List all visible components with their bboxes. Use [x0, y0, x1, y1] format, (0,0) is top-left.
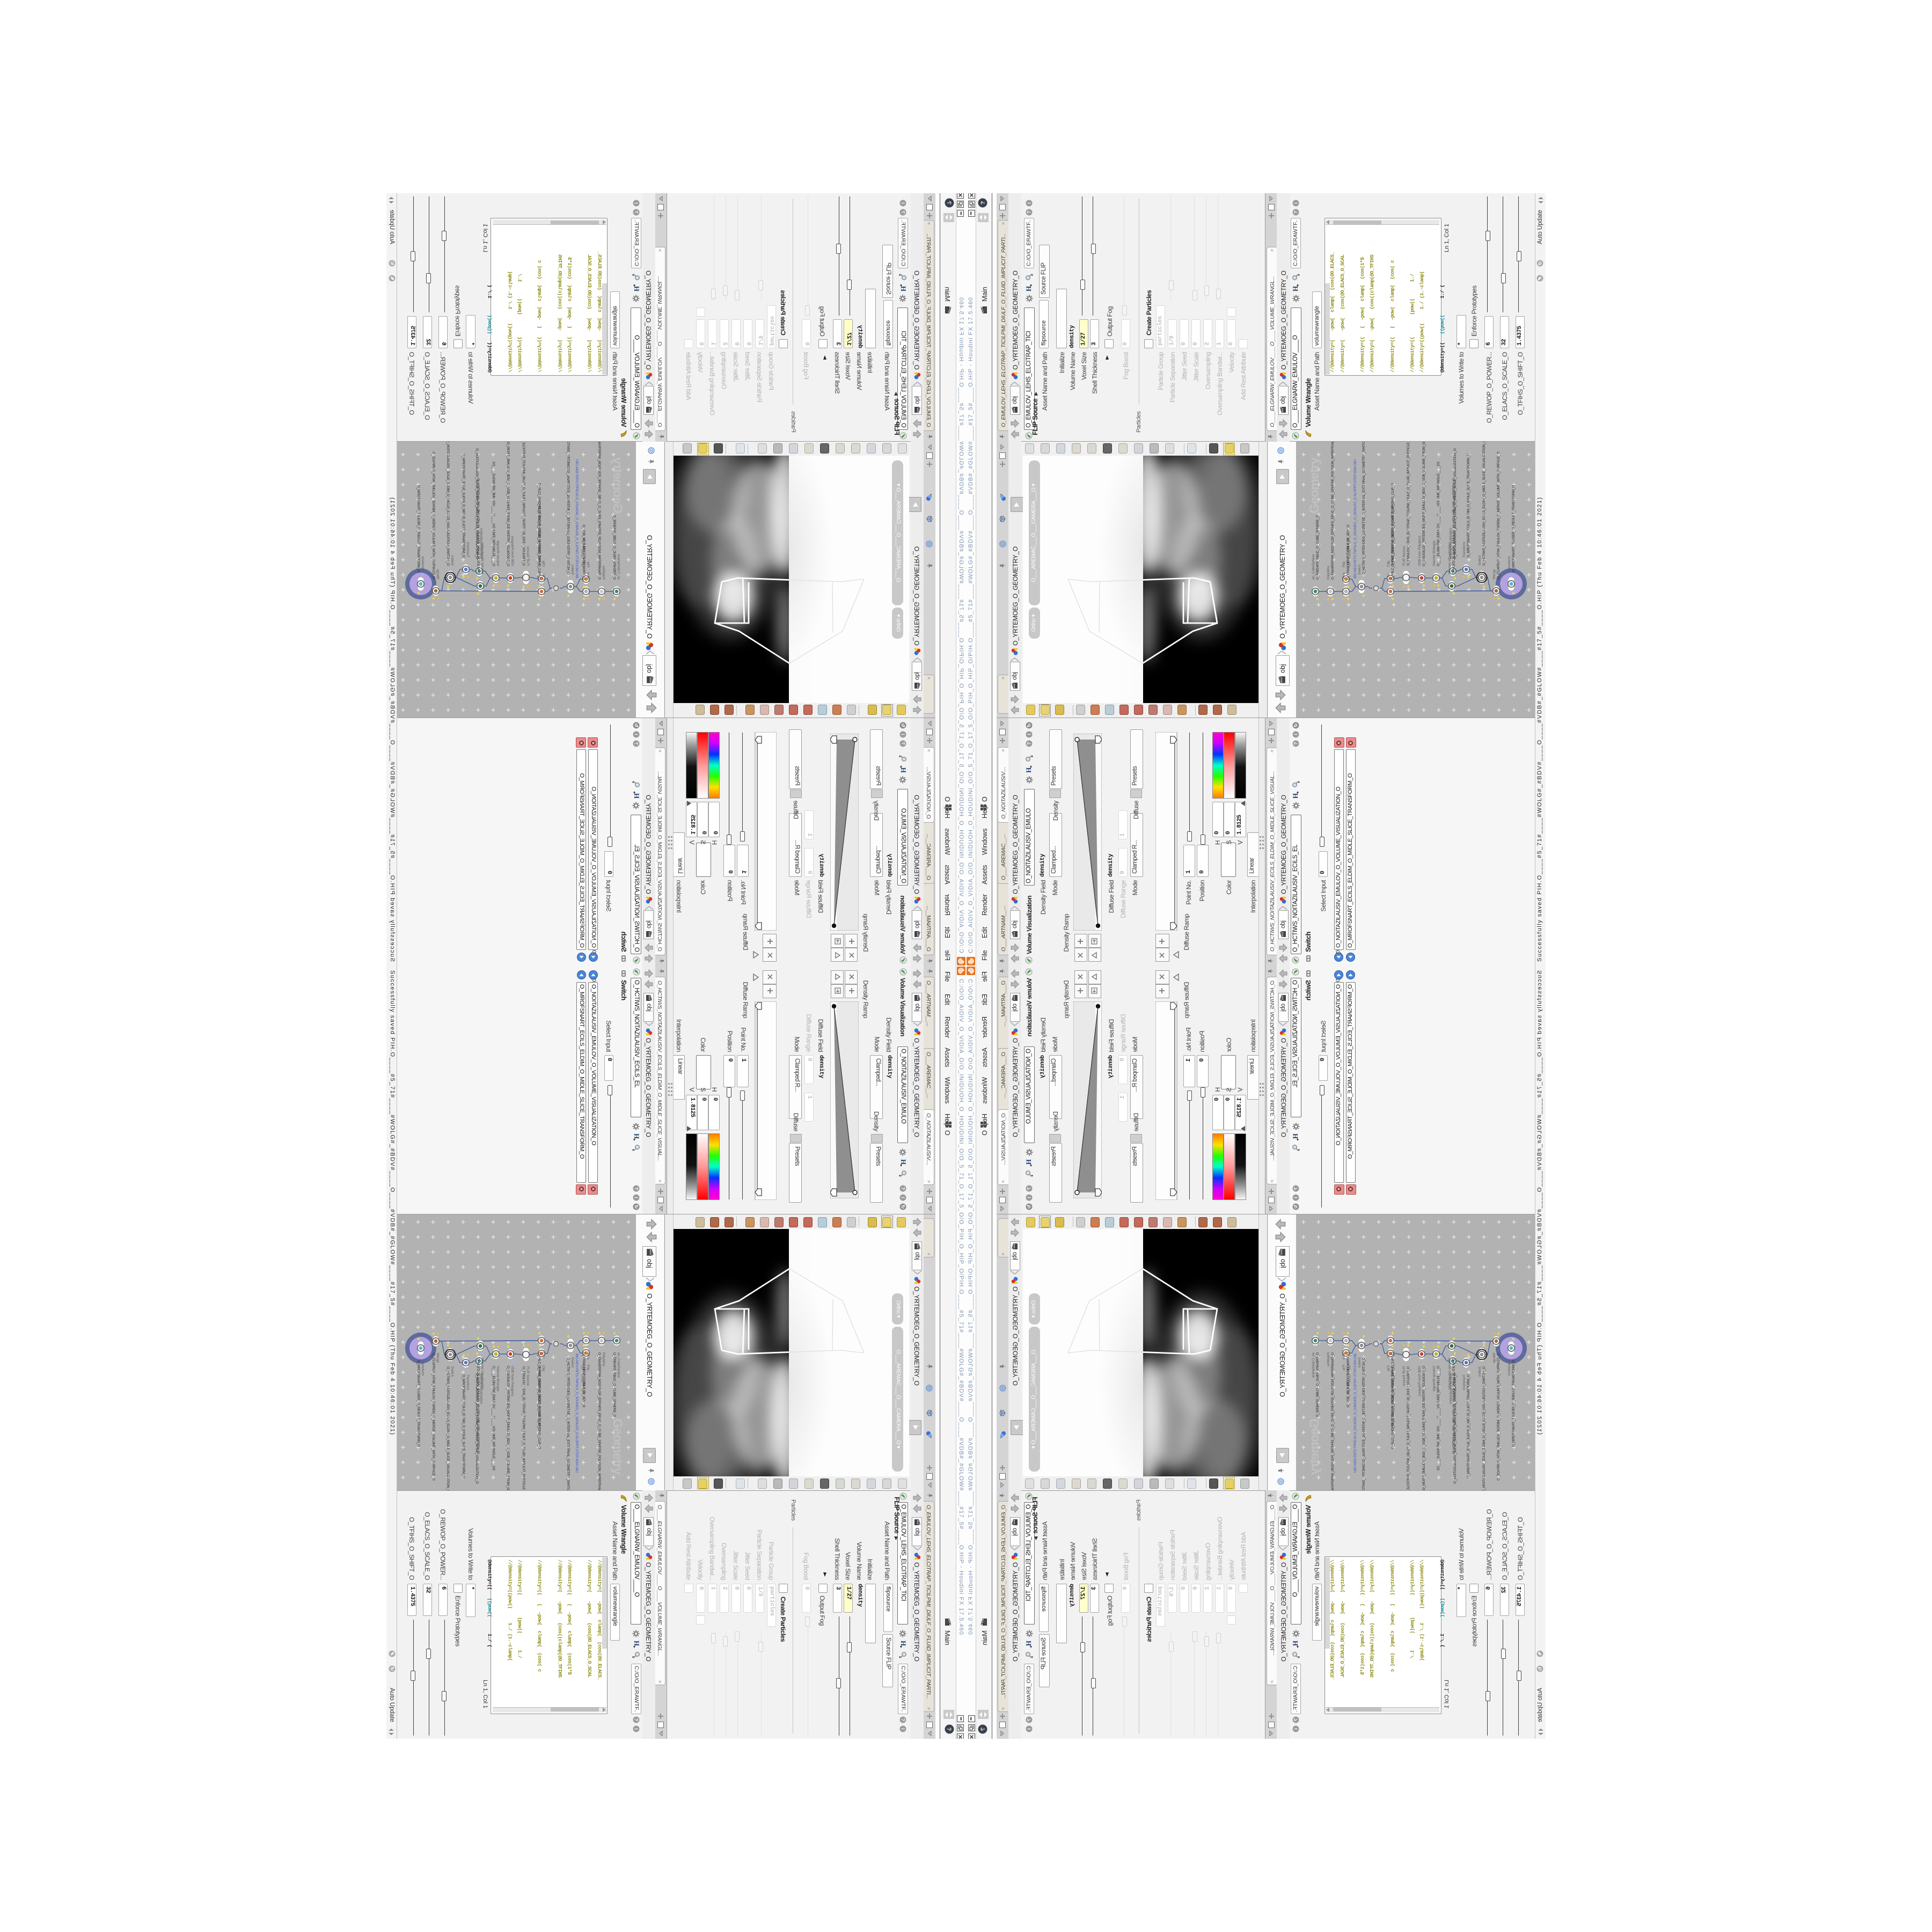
- svg-text:H: H: [899, 1159, 907, 1165]
- svg-text:i: i: [633, 202, 639, 204]
- svg-text:O_SNOGILOP_YRTEMOEG_MORF_EMULO: O_SNOGILOP_YRTEMOEG_MORF_EMULOV_BDV_O_VD…: [1422, 442, 1426, 566]
- svg-text:O_PILC_THGIR_DEDIS_O_SIDED_RIG: O_PILC_THGIR_DEDIS_O_SIDED_RIGHT_CLIP_O: [537, 501, 541, 580]
- svg-text:↻: ↻: [900, 1205, 905, 1209]
- svg-text:Volume Wrangle: Volume Wrangle: [1432, 1366, 1436, 1392]
- svg-text:O_EREHPS_EBUC_O_CUBE_SPHERE_O: O_EREHPS_EBUC_O_CUBE_SPHERE_O: [612, 515, 616, 580]
- svg-text:Volume Wrangle: Volume Wrangle: [496, 1366, 500, 1392]
- svg-text:?: ?: [633, 742, 639, 745]
- svg-text:O_ECAFRUS_HTIW_EMULOV_EGREM_O_: O_ECAFRUS_HTIW_EMULOV_EGREM_O_MERGE_VOLU…: [431, 451, 435, 579]
- svg-text:O_ELIF_O_FILE_O: O_ELIF_O_FILE_O: [1346, 538, 1350, 567]
- svg-text:?: ?: [1293, 1718, 1299, 1722]
- svg-text:O_MROFSNART_ECILS_ELDIM_O_MIDL: O_MROFSNART_ECILS_ELDIM_O_MIDLE_SLICE_TR…: [1467, 1374, 1470, 1479]
- svg-text:JBO.MD3.PETS.T6PSLS_O_5DUNEG_O: JBO.MD3.PETS.T6PSLS_O_5DUNEG_O_GENUS3_O.…: [575, 459, 579, 579]
- svg-text:O_EMULOV_LEHS_ELCITRAP_TICILPM: O_EMULOV_LEHS_ELCITRAP_TICILPMI_DIULF_O_…: [1407, 1366, 1410, 1490]
- svg-text:File: File: [1342, 561, 1346, 567]
- svg-text:?: ?: [1293, 742, 1299, 745]
- svg-text:H: H: [899, 1641, 907, 1646]
- svg-text:Volume Wrangle: Volume Wrangle: [496, 540, 500, 566]
- svg-text:i: i: [1293, 1197, 1299, 1198]
- svg-text:O_MROFSNART_TLUSER_O_RESULT_TR: O_MROFSNART_TLUSER_O_RESULT_TRANSFORM_O: [416, 1360, 420, 1447]
- svg-text:O_HCTIWS_YRTEMOEG_LANRETXE_O_I: O_HCTIWS_YRTEMOEG_LANRETXE_O_INTERNAL_EX…: [566, 1357, 570, 1490]
- svg-text:Switch: Switch: [1358, 1357, 1362, 1368]
- svg-text:Volume Visualization: Volume Visualization: [1448, 542, 1452, 574]
- svg-text:H: H: [1025, 1159, 1033, 1165]
- svg-text:O_ELIF_O_FILE_O: O_ELIF_O_FILE_O: [582, 538, 586, 567]
- svg-text:Volume Visualization: Volume Visualization: [480, 1358, 484, 1390]
- svg-text:↻: ↻: [1538, 1667, 1543, 1671]
- svg-text:↻: ↻: [389, 1667, 394, 1671]
- svg-text:Clip: Clip: [541, 1352, 545, 1359]
- svg-text:?: ?: [900, 1187, 905, 1190]
- svg-text:O_PILC_THGIR_DEDIS_O_SIDED_RIG: O_PILC_THGIR_DEDIS_O_SIDED_RIGHT_CLIP_O: [1391, 501, 1395, 580]
- svg-text:?: ?: [900, 742, 905, 745]
- svg-text:Wire: Wire: [586, 572, 590, 580]
- svg-text:O_SNOGILOP_YRTEMOEG_MORF_EMULO: O_SNOGILOP_YRTEMOEG_MORF_EMULOV_BDV_O_VD…: [506, 1366, 510, 1490]
- svg-text:Volume Wrangle: Volume Wrangle: [1432, 540, 1436, 566]
- svg-text:i: i: [900, 734, 905, 735]
- svg-text:✎: ✎: [1538, 1652, 1543, 1656]
- svg-text:Volume Visualization: Volume Visualization: [1448, 1358, 1452, 1390]
- svg-text:Switch: Switch: [570, 564, 574, 575]
- svg-text:Volume Visualization: Volume Visualization: [480, 542, 484, 574]
- svg-text:Clip: Clip: [1387, 573, 1391, 580]
- svg-text:Wire: Wire: [586, 1352, 590, 1360]
- svg-text:O_MROFSNART_TLUSER_O_RESULT_TR: O_MROFSNART_TLUSER_O_RESULT_TRANSFORM_O: [416, 485, 420, 572]
- svg-text:PolyWire: PolyWire: [1327, 566, 1330, 580]
- svg-text:i: i: [1027, 202, 1032, 204]
- svg-text:Wire: Wire: [1342, 1352, 1346, 1360]
- svg-text:↻: ↻: [389, 261, 394, 266]
- svg-text:PolyWire: PolyWire: [602, 566, 605, 580]
- svg-text:H: H: [1292, 1641, 1299, 1646]
- svg-text:?: ?: [1027, 1187, 1032, 1190]
- svg-text:O_NOITAZILAUSIV_EMULOV_O_VOLUM: O_NOITAZILAUSIV_EMULOV_O_VOLUME_VISUALIZ…: [1452, 1358, 1456, 1454]
- svg-text:O_SNOGILOP_YRTEMOEG_MORF_EMULO: O_SNOGILOP_YRTEMOEG_MORF_EMULOV_BDV_O_VD…: [506, 442, 510, 566]
- svg-text:VDB from Polygons: VDB from Polygons: [1418, 536, 1422, 566]
- svg-text:i: i: [900, 202, 905, 204]
- svg-text:i: i: [1293, 734, 1299, 735]
- svg-text:Switch: Switch: [1358, 564, 1362, 575]
- svg-text:Merge: Merge: [1492, 569, 1496, 579]
- svg-text:O_ELIF_O_FILE_O: O_ELIF_O_FILE_O: [582, 1365, 586, 1394]
- svg-text:i: i: [1293, 202, 1299, 204]
- svg-text:O____ELGNARW_EMULOV____O____VO: O____ELGNARW_EMULOV____O____VOLUME_WRANG…: [492, 1366, 495, 1470]
- svg-text:?: ?: [633, 1187, 639, 1190]
- svg-text:JBO.MD3.PETS.T6PSLS_O_5DUNEG_O: JBO.MD3.PETS.T6PSLS_O_5DUNEG_O_GENUS3_O.…: [1353, 1353, 1357, 1473]
- svg-text:Merge: Merge: [436, 569, 440, 579]
- svg-text:O_MROFSNART_ECILS_ELDIM_O_MIDL: O_MROFSNART_ECILS_ELDIM_O_MIDLE_SLICE_TR…: [1467, 453, 1470, 558]
- svg-text:↻: ↻: [900, 723, 905, 728]
- svg-text:O_EMULOV_LEHS_ELCITRAP_TICILPM: O_EMULOV_LEHS_ELCITRAP_TICILPMI_DIULF_O_…: [1407, 442, 1410, 566]
- svg-text:i: i: [633, 1728, 639, 1730]
- svg-text:O_EMARFERIW_NOGYLOP_EREHPS_EBU: O_EMARFERIW_NOGYLOP_EREHPS_EBUC_O_CUBE_S…: [1331, 1352, 1335, 1490]
- svg-text:H: H: [1025, 1641, 1033, 1646]
- svg-text:O____ELGNARW_EMULOV____O____VO: O____ELGNARW_EMULOV____O____VOLUME_WRANG…: [1437, 462, 1440, 566]
- svg-text:O_HCTIWS_NOITAZILAUSIV_ECILS_E: O_HCTIWS_NOITAZILAUSIV_ECILS_ELDIM_O_MID…: [1482, 1366, 1486, 1490]
- svg-text:O_MROFSNART_TLUSER_O_RESULT_TR: O_MROFSNART_TLUSER_O_RESULT_TRANSFORM_O: [1512, 1360, 1516, 1447]
- svg-text:H: H: [899, 286, 907, 291]
- svg-text:H: H: [1292, 1133, 1299, 1139]
- svg-text:PolyWire: PolyWire: [602, 1352, 605, 1366]
- svg-text:?: ?: [946, 1728, 952, 1731]
- svg-text:Transform: Transform: [1462, 1374, 1466, 1390]
- svg-text:?: ?: [1293, 211, 1299, 214]
- svg-text:Clip: Clip: [1387, 560, 1391, 567]
- svg-text:VDB from Polygons: VDB from Polygons: [510, 1366, 514, 1396]
- svg-text:O_HCTIWS_NOITAZILAUSIV_ECILS_E: O_HCTIWS_NOITAZILAUSIV_ECILS_ELDIM_O_MID…: [1482, 442, 1486, 566]
- svg-text:JBO.MD3.PETS.T6PSLS_O_5DUNEG_O: JBO.MD3.PETS.T6PSLS_O_5DUNEG_O_GENUS3_O.…: [1353, 459, 1357, 579]
- svg-text:H: H: [633, 1641, 640, 1646]
- svg-text:FLIP Source: FLIP Source: [1402, 1366, 1406, 1386]
- svg-text:↻: ↻: [633, 723, 639, 728]
- svg-text:?: ?: [900, 211, 905, 214]
- svg-text:Merge: Merge: [436, 1353, 440, 1363]
- svg-text:VDB from Polygons: VDB from Polygons: [510, 536, 514, 566]
- svg-text:Clip: Clip: [541, 1365, 545, 1372]
- svg-text:O_EREHPS_EBUC_O_CUBE_SPHERE_O: O_EREHPS_EBUC_O_CUBE_SPHERE_O: [1316, 515, 1320, 580]
- svg-text:Switch: Switch: [570, 1357, 574, 1368]
- svg-text:O_ELIF_O_FILE_O: O_ELIF_O_FILE_O: [1346, 1365, 1350, 1394]
- svg-text:Transform: Transform: [466, 542, 470, 558]
- svg-text:i: i: [1027, 1197, 1032, 1198]
- svg-text:↻: ↻: [1538, 261, 1543, 266]
- svg-text:Merge: Merge: [1492, 1353, 1496, 1363]
- svg-text:an_CubeSphere: an_CubeSphere: [617, 1352, 620, 1378]
- svg-text:O_NOITAZILAUSIV_EMULOV_O_VOLUM: O_NOITAZILAUSIV_EMULOV_O_VOLUME_VISUALIZ…: [476, 478, 480, 574]
- svg-text:Switch: Switch: [1478, 1366, 1482, 1377]
- svg-text:FLIP Source: FLIP Source: [1402, 546, 1406, 566]
- svg-text:O____ELGNARW_EMULOV____O____VO: O____ELGNARW_EMULOV____O____VOLUME_WRANG…: [1437, 1366, 1440, 1470]
- svg-text:VDB from Polygons: VDB from Polygons: [1418, 1366, 1422, 1396]
- svg-text:Transform: Transform: [1507, 1360, 1511, 1375]
- svg-text:O_EREHPS_EBUC_O_CUBE_SPHERE_O: O_EREHPS_EBUC_O_CUBE_SPHERE_O: [1316, 1352, 1320, 1417]
- svg-text:an_CubeSphere: an_CubeSphere: [1312, 554, 1315, 580]
- svg-text:File: File: [586, 1365, 590, 1371]
- svg-text:Geometry: Geometry: [610, 1418, 625, 1475]
- svg-text:File: File: [1342, 1365, 1346, 1371]
- svg-text:i: i: [1293, 1728, 1299, 1730]
- svg-text:?: ?: [946, 201, 952, 204]
- svg-text:O_EMULOV_LEHS_ELCITRAP_TICILPM: O_EMULOV_LEHS_ELCITRAP_TICILPMI_DIULF_O_…: [522, 442, 525, 566]
- svg-text:Transform: Transform: [1462, 542, 1466, 558]
- svg-text:O_HCTIWS_YRTEMOEG_LANRETXE_O_I: O_HCTIWS_YRTEMOEG_LANRETXE_O_INTERNAL_EX…: [1362, 442, 1366, 575]
- svg-text:↻: ↻: [1027, 723, 1032, 728]
- svg-text:Clip: Clip: [541, 560, 545, 567]
- svg-text:?: ?: [633, 211, 639, 214]
- svg-text:Clip: Clip: [541, 573, 545, 580]
- svg-text:✎: ✎: [1538, 276, 1543, 281]
- svg-text:O_PILC_THGIR_DEDIS_O_SIDED_RIG: O_PILC_THGIR_DEDIS_O_SIDED_RIGHT_CLIP_O: [537, 1352, 541, 1431]
- svg-text:O_HCTIWS_YRTEMOEG_LANRETXE_O_I: O_HCTIWS_YRTEMOEG_LANRETXE_O_INTERNAL_EX…: [566, 442, 570, 575]
- svg-text:Switch: Switch: [450, 555, 454, 566]
- svg-text:Transform: Transform: [421, 557, 425, 572]
- svg-text:PolyWire: PolyWire: [1327, 1352, 1330, 1366]
- svg-text:✎: ✎: [389, 1652, 394, 1656]
- svg-text:i: i: [900, 1197, 905, 1198]
- svg-text:Transform: Transform: [421, 1360, 425, 1375]
- svg-text:O_MROFSNART_ECILS_ELDIM_O_MIDL: O_MROFSNART_ECILS_ELDIM_O_MIDLE_SLICE_TR…: [462, 1374, 465, 1479]
- svg-text:✎: ✎: [389, 276, 394, 281]
- svg-text:i: i: [633, 734, 639, 735]
- svg-text:Transform: Transform: [1507, 557, 1511, 572]
- svg-text:?: ?: [1293, 1187, 1299, 1190]
- svg-text:O_EMARFERIW_NOGYLOP_EREHPS_EBU: O_EMARFERIW_NOGYLOP_EREHPS_EBUC_O_CUBE_S…: [597, 442, 601, 580]
- svg-text:?: ?: [1027, 211, 1032, 214]
- svg-text:O____ELGNARW_EMULOV____O____VO: O____ELGNARW_EMULOV____O____VOLUME_WRANG…: [492, 462, 495, 566]
- svg-text:i: i: [900, 1728, 905, 1730]
- svg-text:?: ?: [1027, 742, 1032, 745]
- svg-text:i: i: [1027, 1728, 1032, 1730]
- svg-text:H: H: [1025, 286, 1033, 291]
- svg-text:O_HCTIWS_YRTEMOEG_LANRETXE_O_I: O_HCTIWS_YRTEMOEG_LANRETXE_O_INTERNAL_EX…: [1362, 1357, 1366, 1490]
- svg-text:Clip: Clip: [1387, 1365, 1391, 1372]
- svg-text:Clip: Clip: [1387, 1352, 1391, 1359]
- svg-text:Switch: Switch: [1478, 555, 1482, 566]
- svg-text:FLIP Source: FLIP Source: [526, 546, 530, 566]
- svg-text:O_HCTIWS_NOITAZILAUSIV_ECILS_E: O_HCTIWS_NOITAZILAUSIV_ECILS_ELDIM_O_MID…: [446, 1366, 450, 1490]
- svg-text:an_CubeSphere: an_CubeSphere: [617, 554, 620, 580]
- svg-text:O_EREHPS_EBUC_O_CUBE_SPHERE_O: O_EREHPS_EBUC_O_CUBE_SPHERE_O: [612, 1352, 616, 1417]
- svg-text:H: H: [1025, 767, 1033, 773]
- svg-text:H: H: [1292, 286, 1299, 291]
- svg-text:O_EMARFERIW_NOGYLOP_EREHPS_EBU: O_EMARFERIW_NOGYLOP_EREHPS_EBUC_O_CUBE_S…: [597, 1352, 601, 1490]
- svg-text:↻: ↻: [1293, 723, 1299, 728]
- svg-text:?: ?: [1027, 1718, 1032, 1722]
- svg-text:JBO.MD3.PETS.T6PSLS_O_5DUNEG_O: JBO.MD3.PETS.T6PSLS_O_5DUNEG_O_GENUS3_O.…: [575, 1353, 579, 1473]
- svg-text:?: ?: [980, 1728, 986, 1731]
- svg-text:O_NOITAZILAUSIV_EMULOV_O_VOLUM: O_NOITAZILAUSIV_EMULOV_O_VOLUME_VISUALIZ…: [1452, 478, 1456, 574]
- svg-text:Geometry: Geometry: [1307, 457, 1322, 514]
- svg-text:O_MROFSNART_ECILS_ELDIM_O_MIDL: O_MROFSNART_ECILS_ELDIM_O_MIDLE_SLICE_TR…: [462, 453, 465, 558]
- svg-text:O_ECAFRUS_HTIW_EMULOV_EGREM_O_: O_ECAFRUS_HTIW_EMULOV_EGREM_O_MERGE_VOLU…: [1497, 1353, 1501, 1481]
- svg-text:↻: ↻: [1027, 1205, 1032, 1209]
- svg-text:O_SNOGILOP_YRTEMOEG_MORF_EMULO: O_SNOGILOP_YRTEMOEG_MORF_EMULOV_BDV_O_VD…: [1422, 1366, 1426, 1490]
- svg-text:O_ECAFRUS_HTIW_EMULOV_EGREM_O_: O_ECAFRUS_HTIW_EMULOV_EGREM_O_MERGE_VOLU…: [431, 1353, 435, 1481]
- svg-text:?: ?: [900, 1718, 905, 1722]
- svg-text:i: i: [633, 1197, 639, 1198]
- svg-text:↻: ↻: [1293, 1205, 1299, 1209]
- svg-text:H: H: [633, 793, 640, 799]
- svg-text:O_EMARFERIW_NOGYLOP_EREHPS_EBU: O_EMARFERIW_NOGYLOP_EREHPS_EBUC_O_CUBE_S…: [1331, 442, 1335, 580]
- svg-text:Transform: Transform: [466, 1374, 470, 1390]
- svg-text:FLIP Source: FLIP Source: [526, 1366, 530, 1386]
- svg-text:?: ?: [633, 1718, 639, 1722]
- svg-text:↻: ↻: [633, 1205, 639, 1209]
- svg-text:H: H: [899, 767, 907, 773]
- svg-text:O_NOITAZILAUSIV_EMULOV_O_VOLUM: O_NOITAZILAUSIV_EMULOV_O_VOLUME_VISUALIZ…: [476, 1358, 480, 1454]
- svg-text:O_HCTIWS_NOITAZILAUSIV_ECILS_E: O_HCTIWS_NOITAZILAUSIV_ECILS_ELDIM_O_MID…: [446, 442, 450, 566]
- svg-text:i: i: [1027, 734, 1032, 735]
- svg-text:O_PILC_THGIR_DEDIS_O_SIDED_RIG: O_PILC_THGIR_DEDIS_O_SIDED_RIGHT_CLIP_O: [1391, 1352, 1395, 1431]
- svg-text:an_CubeSphere: an_CubeSphere: [1312, 1352, 1315, 1378]
- svg-text:Switch: Switch: [450, 1366, 454, 1377]
- svg-text:Wire: Wire: [1342, 572, 1346, 580]
- svg-text:H: H: [1292, 793, 1299, 799]
- svg-text:O_EMULOV_LEHS_ELCITRAP_TICILPM: O_EMULOV_LEHS_ELCITRAP_TICILPMI_DIULF_O_…: [522, 1366, 525, 1490]
- svg-text:O_ECAFRUS_HTIW_EMULOV_EGREM_O_: O_ECAFRUS_HTIW_EMULOV_EGREM_O_MERGE_VOLU…: [1497, 451, 1501, 579]
- svg-text:Geometry: Geometry: [1307, 1418, 1322, 1475]
- svg-text:H: H: [633, 286, 640, 291]
- svg-text:File: File: [586, 561, 590, 567]
- svg-text:Geometry: Geometry: [610, 457, 625, 514]
- svg-text:H: H: [633, 1133, 640, 1139]
- svg-text:O_MROFSNART_TLUSER_O_RESULT_TR: O_MROFSNART_TLUSER_O_RESULT_TRANSFORM_O: [1512, 485, 1516, 572]
- svg-text:?: ?: [980, 201, 986, 204]
